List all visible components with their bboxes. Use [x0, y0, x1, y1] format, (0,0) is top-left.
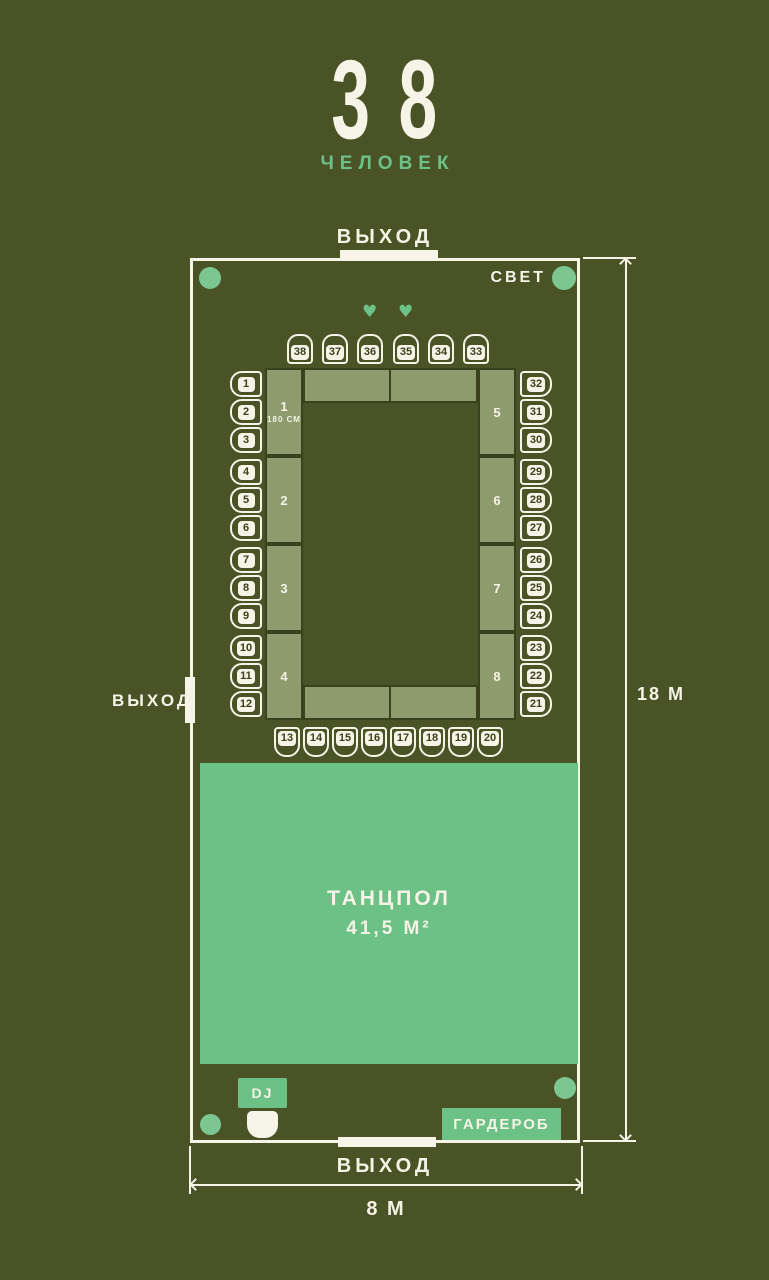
chair-16: 16: [361, 727, 387, 757]
table-segment-top-left: [303, 368, 391, 403]
chair-15: 15: [332, 727, 358, 757]
dimension-extension-right: [581, 1146, 583, 1194]
chair-5: 5: [230, 487, 262, 513]
chair-26: 26: [520, 547, 552, 573]
chair-12: 12: [230, 691, 262, 717]
light-label: СВЕТ: [460, 269, 546, 287]
chair-number: 22: [527, 669, 545, 684]
chair-number: 28: [527, 493, 545, 508]
width-dimension-label: 8 М: [190, 1198, 582, 1221]
door-bottom: [338, 1137, 436, 1147]
door-top: [340, 250, 438, 260]
chair-29: 29: [520, 459, 552, 485]
chair-number: 35: [397, 345, 415, 360]
table-number: 3: [280, 582, 287, 595]
dj-chair-icon: [247, 1111, 278, 1138]
chair-number: 5: [238, 493, 255, 508]
chair-18: 18: [419, 727, 445, 757]
chair-number: 27: [527, 521, 545, 536]
table-number: 8: [493, 670, 500, 683]
light-dot-top-left: [199, 267, 221, 289]
arrow-up-icon: [619, 257, 632, 270]
chair-25: 25: [520, 575, 552, 601]
chair-20: 20: [477, 727, 503, 757]
table-segment-top-right: [389, 368, 478, 403]
chair-number: 23: [527, 641, 545, 656]
dance-floor-label: ТАНЦПОЛ: [327, 887, 451, 911]
chair-22: 22: [520, 663, 552, 689]
chair-number: 9: [238, 609, 255, 624]
chair-number: 37: [326, 345, 344, 360]
chair-number: 32: [527, 377, 545, 392]
heart-icon: ♥: [362, 304, 377, 321]
chair-number: 12: [237, 697, 255, 712]
wardrobe: ГАРДЕРОБ: [442, 1108, 561, 1140]
chair-27: 27: [520, 515, 552, 541]
banquet-floor-plan: 38 ЧЕЛОВЕК ВЫХОД ВЫХОД ВЫХОД СВЕТ 18 М 8…: [0, 0, 769, 1280]
chair-3: 3: [230, 427, 262, 453]
chair-number: 36: [361, 345, 379, 360]
exit-label-top: ВЫХОД: [190, 226, 580, 249]
chair-21: 21: [520, 691, 552, 717]
chair-number: 31: [527, 405, 545, 420]
height-dimension-label: 18 М: [637, 684, 685, 705]
chair-number: 6: [238, 521, 255, 536]
arrow-left-icon: [189, 1178, 202, 1191]
chair-number: 19: [452, 731, 470, 746]
chair-13: 13: [274, 727, 300, 757]
chair-number: 15: [336, 731, 354, 746]
chair-32: 32: [520, 371, 552, 397]
exit-label-left: ВЫХОД: [112, 691, 174, 711]
table-8: 8: [478, 632, 516, 720]
chair-number: 24: [527, 609, 545, 624]
chair-number: 14: [307, 731, 325, 746]
chair-number: 34: [432, 345, 450, 360]
table-number: 5: [493, 406, 500, 419]
chair-number: 17: [394, 731, 412, 746]
chair-number: 18: [423, 731, 441, 746]
chair-number: 30: [527, 433, 545, 448]
dimension-line-width: [190, 1184, 582, 1186]
chair-number: 33: [467, 345, 485, 360]
wardrobe-label: ГАРДЕРОБ: [453, 1116, 549, 1133]
light-dot-bottom-right: [554, 1077, 576, 1099]
dj-booth: DJ: [238, 1078, 287, 1108]
chair-28: 28: [520, 487, 552, 513]
chair-30: 30: [520, 427, 552, 453]
chair-4: 4: [230, 459, 262, 485]
chair-number: 21: [527, 697, 545, 712]
table-number: 2: [280, 494, 287, 507]
chair-number: 4: [238, 465, 255, 480]
chair-23: 23: [520, 635, 552, 661]
chair-number: 13: [278, 731, 296, 746]
table-number: 1: [280, 400, 287, 413]
heart-icon: ♥: [398, 304, 413, 321]
chair-14: 14: [303, 727, 329, 757]
dance-floor: ТАНЦПОЛ 41,5 М²: [200, 763, 578, 1064]
chair-8: 8: [230, 575, 262, 601]
chair-37: 37: [322, 334, 348, 364]
table-number: 4: [280, 670, 287, 683]
table-7: 7: [478, 544, 516, 632]
chair-10: 10: [230, 635, 262, 661]
table-number: 7: [493, 582, 500, 595]
dance-floor-area: 41,5 М²: [346, 918, 431, 940]
chair-number: 2: [238, 405, 255, 420]
table-segment-bottom-left: [303, 685, 391, 720]
chair-number: 7: [238, 553, 255, 568]
chair-31: 31: [520, 399, 552, 425]
guest-count-label: ЧЕЛОВЕК: [3, 153, 769, 175]
table-size-note: 180 СМ: [267, 416, 301, 424]
guest-count: 38: [160, 44, 637, 156]
chair-number: 16: [365, 731, 383, 746]
door-left: [185, 677, 195, 723]
table-4: 4: [265, 632, 303, 720]
light-dot-top-right: [552, 266, 576, 290]
chair-number: 11: [237, 669, 255, 684]
chair-19: 19: [448, 727, 474, 757]
chair-24: 24: [520, 603, 552, 629]
chair-34: 34: [428, 334, 454, 364]
chair-7: 7: [230, 547, 262, 573]
table-segment-bottom-right: [389, 685, 478, 720]
chair-1: 1: [230, 371, 262, 397]
exit-label-bottom: ВЫХОД: [190, 1155, 580, 1178]
chair-number: 1: [238, 377, 255, 392]
chair-35: 35: [393, 334, 419, 364]
table-1: 1 180 СМ: [265, 368, 303, 456]
chair-36: 36: [357, 334, 383, 364]
light-dot-bottom-left: [200, 1114, 221, 1135]
chair-number: 25: [527, 581, 545, 596]
chair-33: 33: [463, 334, 489, 364]
chair-number: 8: [238, 581, 255, 596]
chair-number: 26: [527, 553, 545, 568]
chair-38: 38: [287, 334, 313, 364]
dimension-extension-bottom: [583, 1140, 636, 1142]
dj-label: DJ: [252, 1085, 274, 1101]
chair-2: 2: [230, 399, 262, 425]
table-5: 5: [478, 368, 516, 456]
chair-9: 9: [230, 603, 262, 629]
chair-number: 10: [237, 641, 255, 656]
table-6: 6: [478, 456, 516, 544]
table-number: 6: [493, 494, 500, 507]
chair-number: 29: [527, 465, 545, 480]
chair-17: 17: [390, 727, 416, 757]
table-3: 3: [265, 544, 303, 632]
chair-number: 38: [291, 345, 309, 360]
chair-6: 6: [230, 515, 262, 541]
chair-11: 11: [230, 663, 262, 689]
chair-number: 20: [481, 731, 499, 746]
dimension-line-height: [625, 258, 627, 1141]
chair-number: 3: [238, 433, 255, 448]
table-2: 2: [265, 456, 303, 544]
